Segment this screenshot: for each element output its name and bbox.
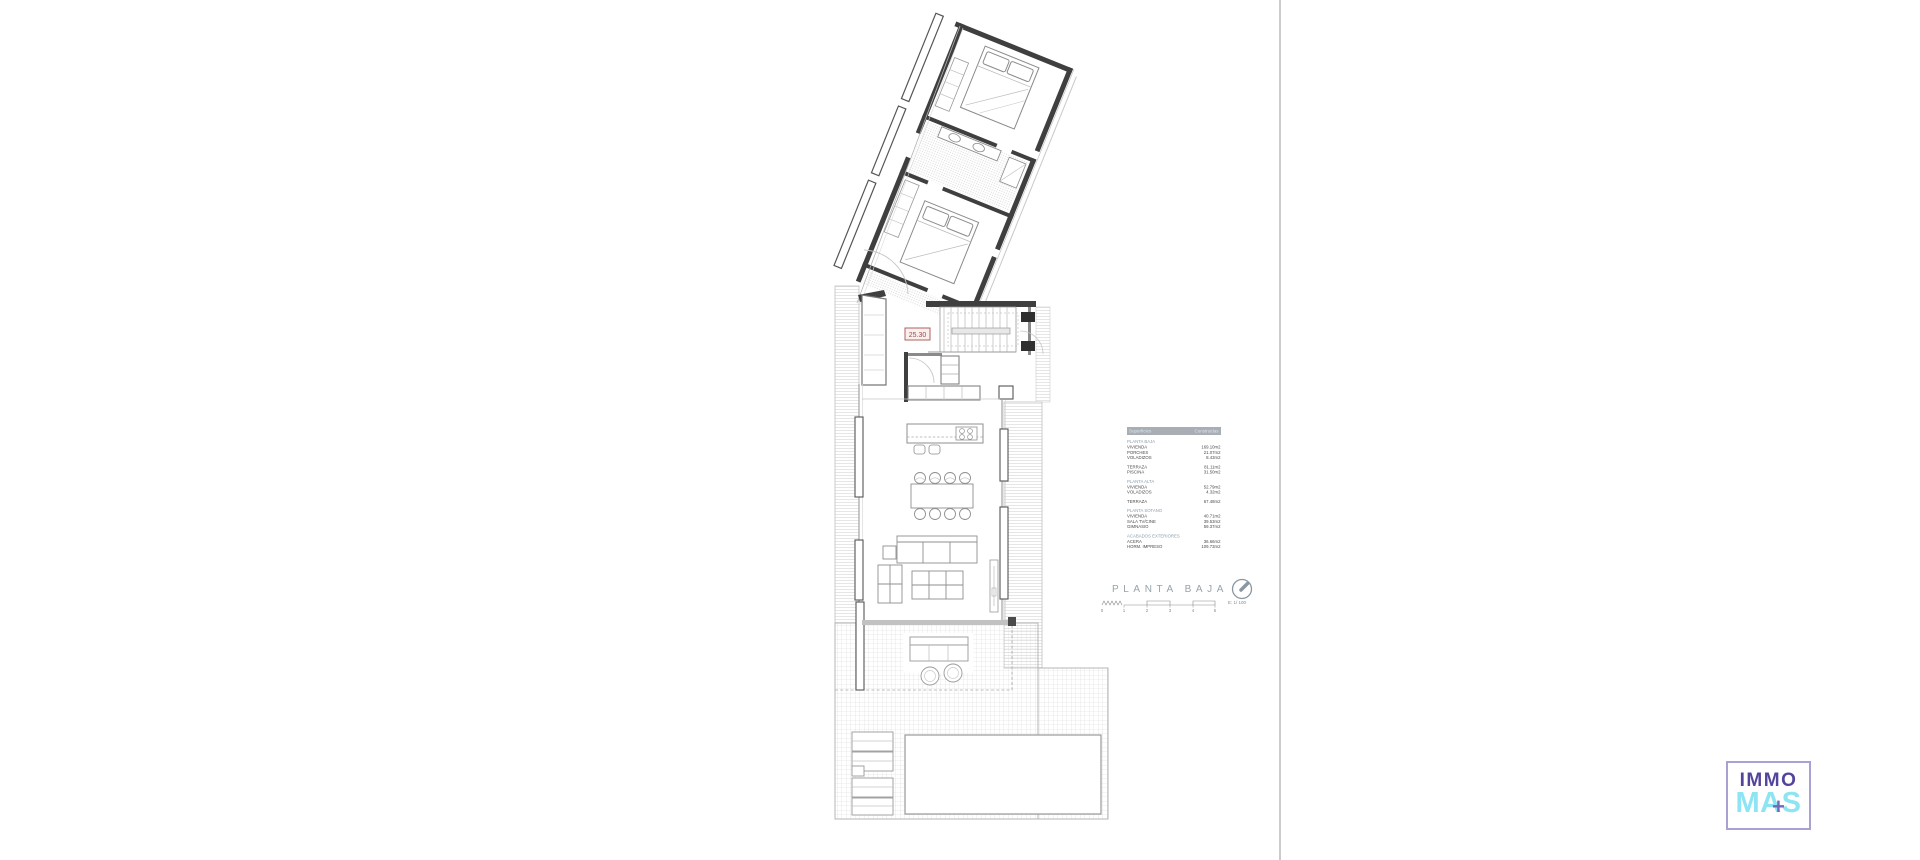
floorplan-page: 25.30 Superficies Construidas PLANTA BAJ… [0,0,1920,860]
dimension-value: 25.30 [909,332,927,339]
logo-text-mas: MAS + [1728,790,1809,816]
entry-wardrobe [862,295,886,385]
floorplan-drawing: 25.30 [0,0,1920,860]
surfaces-group-acabados: ACABADOS EXTERIORES ACERA36.66m2 HORM. I… [1127,533,1221,549]
table-row: GIMNASIO59.37m2 [1127,524,1221,529]
surfaces-group-planta-alta: PLANTA ALTA VIVIENDA52.79m2 VOLADIZOS4.3… [1127,479,1221,495]
table-row: VOLADIZOS8.43m2 [1127,455,1221,460]
bed-1 [960,46,1039,129]
immomas-logo: IMMO MAS + [1726,761,1811,830]
page-divider-line [1279,0,1281,860]
staircase [926,301,1043,355]
bed-2 [900,201,979,284]
dimension-label: 25.30 [905,328,930,340]
scale-tick: 2 [1146,608,1149,613]
scale-bar: 0 1 2 3 4 5 E: 1/ 100 [1100,597,1260,613]
stool [929,445,940,454]
dining-table [911,473,973,520]
surfaces-group-terraza-piscina: TERRAZA81.11m2 PISCINA31.50m2 [1127,464,1221,475]
table-row: TERRAZA67.48m2 [1127,499,1221,504]
surfaces-table-header: Superficies Construidas [1127,427,1221,435]
scale-label: E: 1/ 100 [1228,600,1247,605]
surfaces-col-superficies: Superficies [1129,429,1151,434]
side-table [883,546,896,559]
table-row: HORM. IMPRESO109.73m2 [1127,544,1221,549]
scale-tick: 3 [1169,608,1172,613]
scale-tick: 0 [1101,608,1104,613]
kitchen-cabinets [904,352,980,402]
surfaces-table: Superficies Construidas PLANTA BAJA VIVI… [1127,427,1222,672]
page-title: PLANTA BAJA [1112,584,1228,595]
stool [914,445,925,454]
scale-tick: 1 [1123,608,1126,613]
table-row: PISCINA31.50m2 [1127,470,1221,475]
surfaces-group-planta-sotano: PLANTA SOTANO VIVIENDA40.71m2 SALA TV/CI… [1127,508,1221,529]
logo-plus-icon: + [1772,796,1785,818]
scale-tick: 4 [1192,608,1195,613]
table-row: VOLADIZOS4.32m2 [1127,490,1221,495]
sofa-set [878,536,977,603]
fireplace [990,560,998,612]
surfaces-col-construidas: Construidas [1194,429,1218,434]
kitchen-island [907,424,983,454]
door-swing-arc [909,358,934,383]
pool [905,735,1101,814]
scale-tick: 5 [1214,608,1217,613]
surfaces-group-planta-baja: PLANTA BAJA VIVIENDA169.10m2 PORCHES21.0… [1127,439,1221,460]
surfaces-group-terraza-alta: TERRAZA67.48m2 [1127,499,1221,504]
cooktop [956,427,977,440]
